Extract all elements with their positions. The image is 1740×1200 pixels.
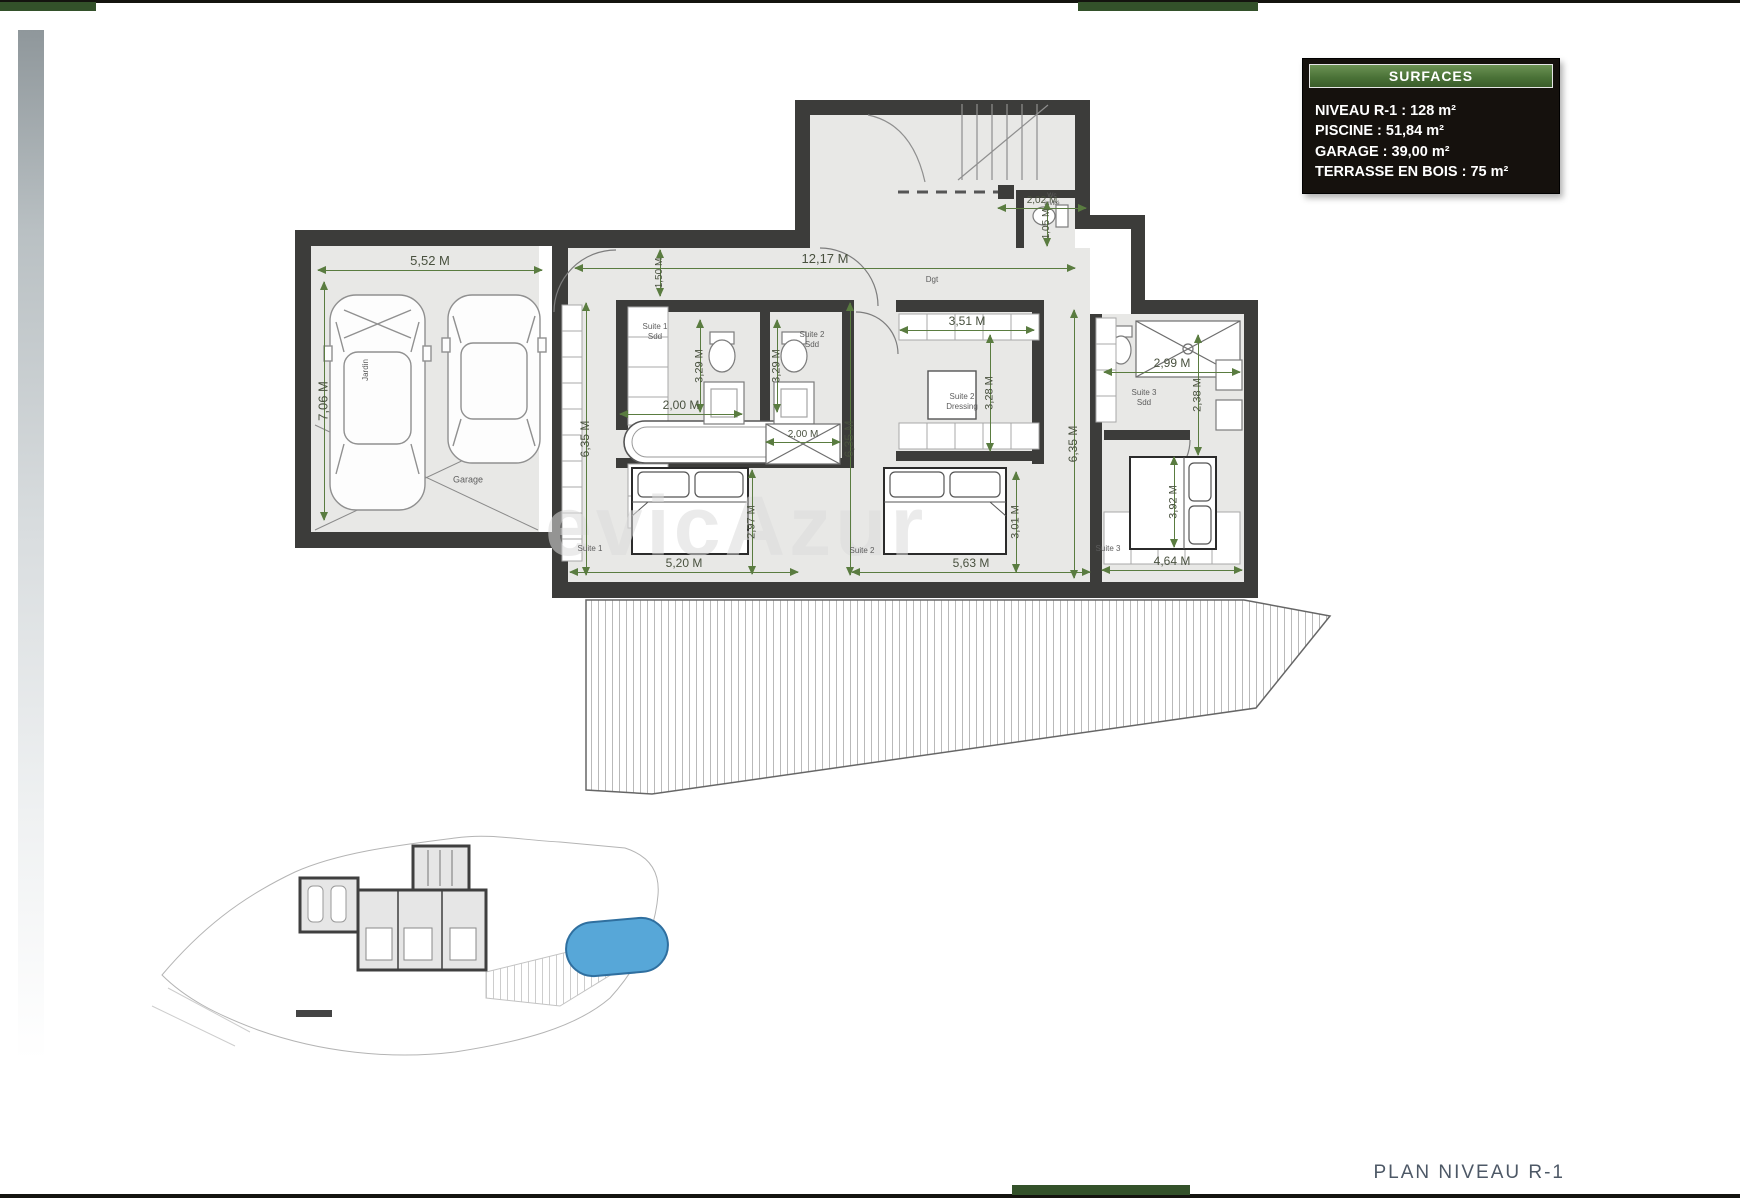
pool [564,916,670,979]
room-label: Dgt [926,275,938,285]
dimension-label: 2,00 M [663,398,700,412]
dimension-label: 3,51 M [949,314,986,328]
room-label: Wc invité [1044,192,1059,208]
dimension-line: 2,00 M [766,442,840,443]
dimension-line: 1,05 M [1047,202,1048,246]
mini-garage [300,878,358,932]
room-label: Suite 2 Sdd [800,330,825,350]
dimension-line: 2,99 M [1104,372,1240,373]
dimension-line: 1,50 M [660,250,661,296]
dimension-line: 5,63 M [852,572,1090,573]
dimension-label: 3,92 M [1167,485,1179,519]
room-label: Suite 1 [578,544,603,554]
dimension-label: 12,17 M [802,251,849,266]
dimension-label: 7,06 M [315,381,330,421]
dimension-line: 12,17 M [575,268,1075,269]
toilet-suite1 [709,332,735,372]
dimension-line: 2,38 M [1198,335,1199,455]
surface-item: PISCINE : 51,84 m² [1315,121,1547,141]
surfaces-panel-body: NIVEAU R-1 : 128 m² PISCINE : 51,84 m² G… [1303,93,1559,193]
surfaces-panel-title: SURFACES [1309,64,1553,88]
room-label: Suite 1 Sdd [643,322,668,342]
room-label: Suite 3 [1096,544,1121,554]
plan-page: evicAzur 5,52 M7,06 M12,17 M1,50 M2,02 M… [0,0,1740,1200]
dimension-label: 1,50 M [654,258,665,289]
room-label: Suite 2 [850,546,875,556]
dimension-label: 6,35 M [842,421,856,458]
dimension-label: 6,35 M [1066,426,1080,463]
mini-house [358,846,486,970]
room-label: Garage [453,474,483,485]
dimension-label: 3,01 M [1009,505,1021,539]
car-2 [442,295,546,463]
bed-1 [632,468,748,554]
terrace-wood-deck [586,600,1330,794]
dimension-line: 6,35 M [1074,310,1075,578]
dimension-line: 4,64 M [1102,570,1242,571]
plan-title: PLAN NIVEAU R-1 [1330,1162,1565,1184]
dimension-label: 5,20 M [666,556,703,570]
dimension-line: 6,35 M [586,303,587,575]
dimension-label: 4,64 M [1154,554,1191,568]
dimension-line: 5,52 M [318,270,542,271]
dimension-label: 2,97 M [745,505,757,539]
dimension-label: 5,52 M [410,253,450,268]
dimension-line: 2,00 M [620,414,742,415]
dimension-label: 3,28 M [983,376,995,410]
room-label: Suite 3 Sdd [1132,388,1157,408]
room-label: Suite 2 Dressing [946,392,978,412]
surface-item: NIVEAU R-1 : 128 m² [1315,101,1547,121]
dimension-line: 2,97 M [752,470,753,574]
dimension-line: 6,35 M [850,303,851,575]
surface-item: GARAGE : 39,00 m² [1315,142,1547,162]
washbasin-suite2 [774,382,814,424]
dimension-label: 2,99 M [1154,356,1191,370]
dimension-line: 5,20 M [570,572,798,573]
dimension-label: 3,29 M [693,349,705,383]
dimension-line: 3,29 M [777,320,778,412]
site-mark [296,1010,332,1017]
surface-item: TERRASSE EN BOIS : 75 m² [1315,162,1547,182]
dimension-label: 2,38 M [1191,378,1203,412]
dimension-line: 3,29 M [700,320,701,412]
site-plan-overview [152,836,670,1055]
dimension-line: 3,01 M [1016,472,1017,572]
dimension-line: 3,51 M [900,330,1034,331]
dimension-line: 3,28 M [990,335,991,451]
dimension-label: 3,29 M [770,349,782,383]
bed-2 [884,468,1006,554]
car-1 [324,295,431,510]
dimension-line: 7,06 M [324,282,325,520]
dimension-line: 3,92 M [1174,457,1175,547]
dimension-label: 6,35 M [578,421,592,458]
dimension-label: 5,63 M [953,556,990,570]
room-label: Jardin [361,359,371,381]
surfaces-panel: SURFACES NIVEAU R-1 : 128 m² PISCINE : 5… [1302,58,1560,194]
dimension-label: 2,00 M [788,429,819,440]
dimension-label: 1,05 M [1041,209,1052,240]
